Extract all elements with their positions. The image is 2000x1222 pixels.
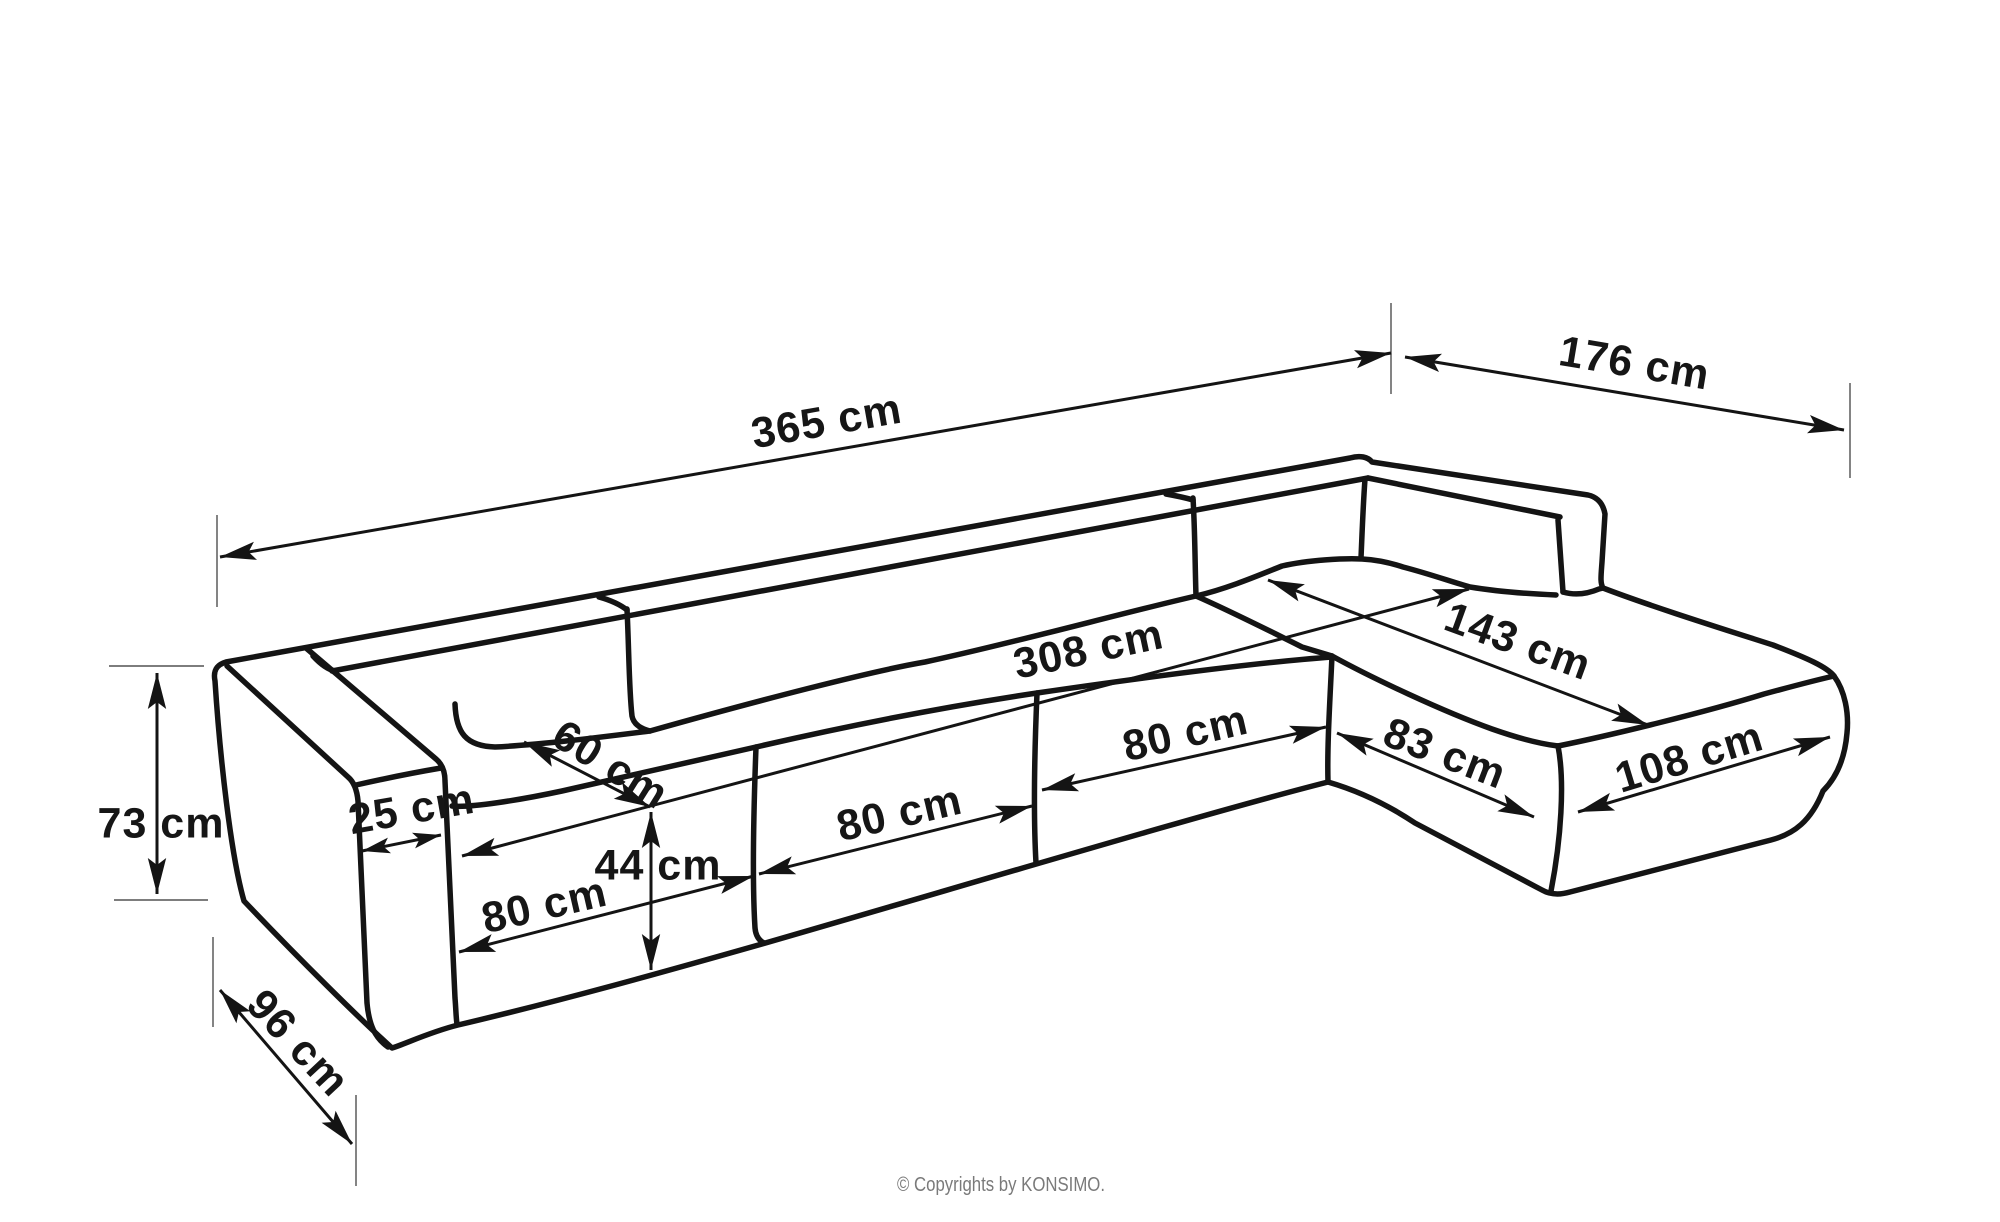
svg-text:73 cm: 73 cm (98, 799, 225, 847)
svg-text:© Copyrights by KONSIMO.: © Copyrights by KONSIMO. (897, 1173, 1105, 1196)
svg-text:44 cm: 44 cm (595, 841, 722, 889)
